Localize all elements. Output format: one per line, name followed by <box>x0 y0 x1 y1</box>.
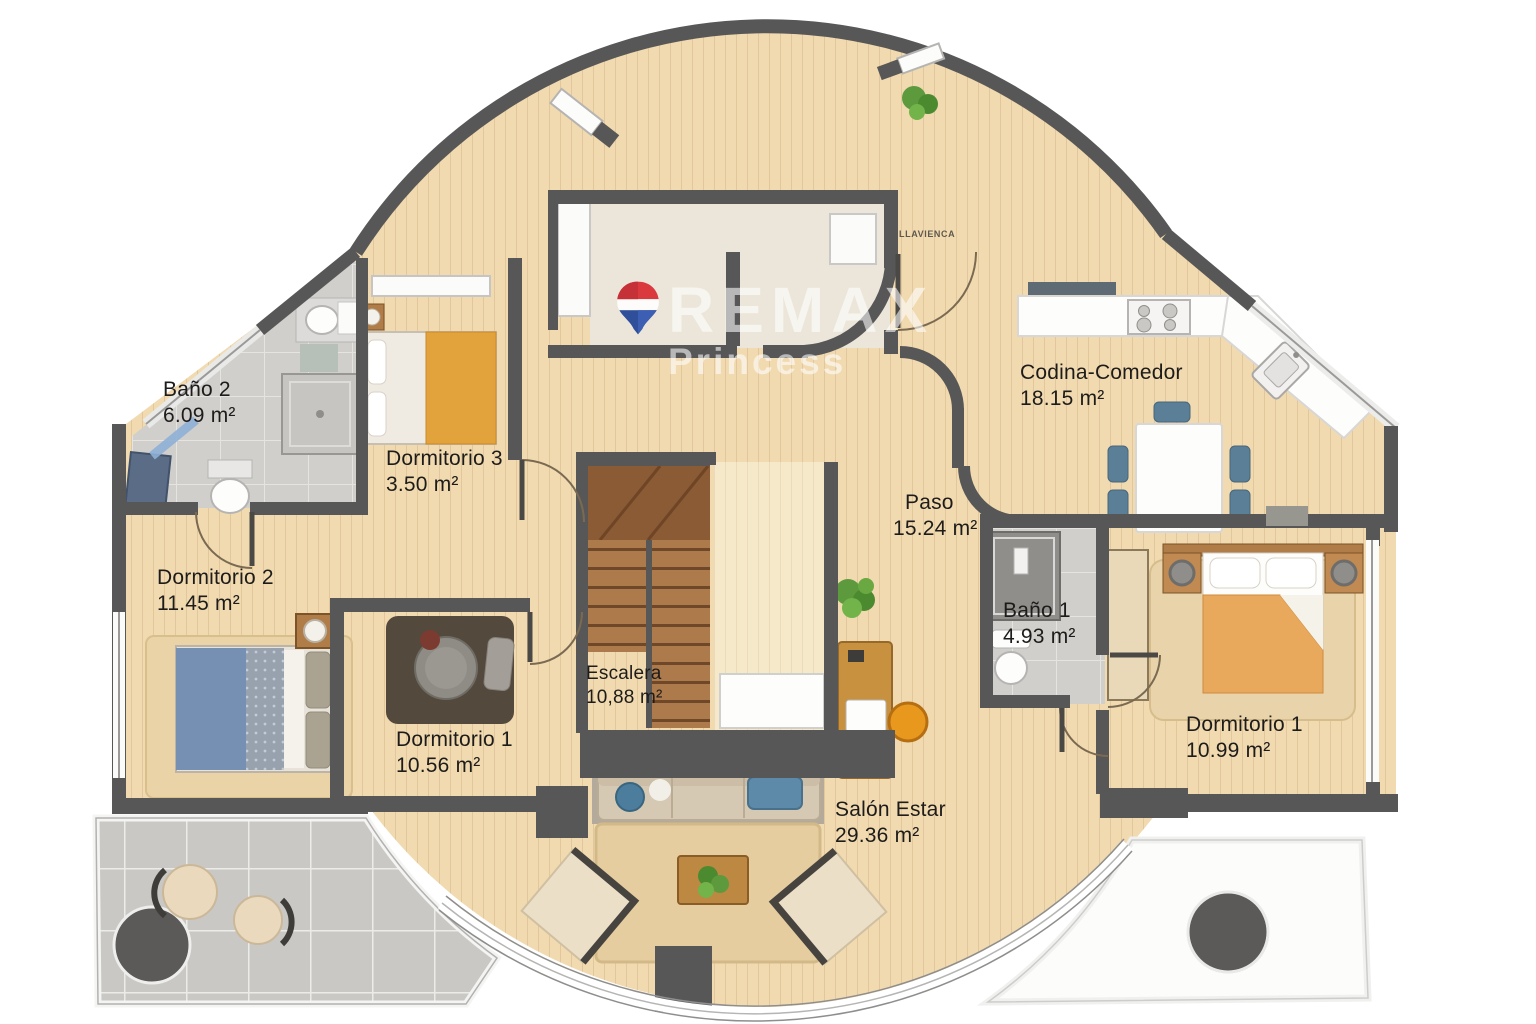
sink <box>306 306 338 334</box>
pillow <box>368 392 386 436</box>
room-area: 11.45 m² <box>157 591 274 617</box>
pillow <box>368 340 386 384</box>
bed-sheet <box>284 650 304 768</box>
room-area: 6.09 m² <box>163 403 236 429</box>
room-name: Dormitorio 3 <box>386 447 503 470</box>
toilet <box>995 652 1027 684</box>
pillow <box>306 712 330 768</box>
room-area: 15.24 m² <box>893 516 977 542</box>
counter <box>1018 296 1228 336</box>
pillow <box>1266 558 1316 588</box>
room-label-dormitorio-1-left: Dormitorio 1 10.56 m² <box>396 727 513 779</box>
bedroom-2-furniture <box>146 614 352 798</box>
room-area: 10,88 m² <box>586 686 663 710</box>
bedroom-1-right-furniture <box>1108 544 1363 720</box>
room-area: 10.99 m² <box>1186 738 1303 764</box>
terrace-planter <box>114 907 190 983</box>
closet <box>558 198 590 316</box>
bed-quilt <box>246 648 284 770</box>
room-area: 4.93 m² <box>1003 624 1076 650</box>
room-label-escalera: Escalera 10,88 m² <box>586 662 663 710</box>
dining-chair <box>1108 446 1128 482</box>
lamp <box>304 620 326 642</box>
room-name: Salón Estar <box>835 798 946 821</box>
room-name: Dormitorio 1 <box>1186 713 1303 736</box>
room-label-paso: Paso 15.24 m² <box>905 490 977 542</box>
room-name: Paso <box>905 491 954 514</box>
cabinet <box>338 302 358 334</box>
armchair-blue <box>748 777 802 809</box>
room-name: Dormitorio 1 <box>396 728 513 751</box>
closet <box>830 214 876 264</box>
room-name: Codina-Comedor <box>1020 361 1183 384</box>
room-label-dormitorio-1-right: Dormitorio 1 10.99 m² <box>1186 712 1303 764</box>
room-name: Baño 2 <box>163 378 231 401</box>
floor-plan-page: Baño 2 6.09 m² Dormitorio 3 3.50 m² Dorm… <box>0 0 1536 1024</box>
pillow <box>306 652 330 708</box>
bath-mat <box>300 344 338 372</box>
room-label-bano-1: Baño 1 4.93 m² <box>1003 598 1076 650</box>
room-label-dormitorio-3: Dormitorio 3 3.50 m² <box>386 446 503 498</box>
floor-plan-svg <box>0 0 1536 1024</box>
door-stamp-text: LLAVIENCA <box>899 229 955 239</box>
stove <box>1128 300 1190 334</box>
dining-chair <box>1230 446 1250 482</box>
cushion <box>420 630 440 650</box>
bed-blanket <box>176 648 246 770</box>
laptop <box>846 700 886 732</box>
room-area: 10.56 m² <box>396 753 513 779</box>
pillow <box>1210 558 1260 588</box>
laundry-unit <box>125 452 170 510</box>
room-name: Dormitorio 2 <box>157 566 274 589</box>
ottoman <box>483 637 514 691</box>
wardrobe <box>372 276 490 296</box>
toilet <box>211 479 249 513</box>
room-area: 29.36 m² <box>835 823 946 849</box>
pouf-blue <box>616 783 644 811</box>
appliance-shelf <box>1028 282 1116 297</box>
throw <box>649 779 671 801</box>
room-label-salon-estar: Salón Estar 29.36 m² <box>835 797 946 849</box>
room-name: Escalera <box>586 663 662 684</box>
room-label-codina-comedor: Codina-Comedor 18.15 m² <box>1020 360 1183 412</box>
wardrobe <box>1108 550 1148 700</box>
desk-item <box>848 650 864 662</box>
toilet-tank <box>208 460 252 478</box>
room-area: 18.15 m² <box>1020 386 1183 412</box>
room-label-dormitorio-2: Dormitorio 2 11.45 m² <box>157 565 274 617</box>
terrace-planter <box>1188 892 1268 972</box>
bedroom-1-left-furniture <box>386 616 515 724</box>
room-label-bano-2: Baño 2 6.09 m² <box>163 377 236 429</box>
room-area: 3.50 m² <box>386 472 503 498</box>
stair-void-panel <box>720 674 824 728</box>
bed-blanket <box>426 332 496 444</box>
room-name: Baño 1 <box>1003 599 1071 622</box>
